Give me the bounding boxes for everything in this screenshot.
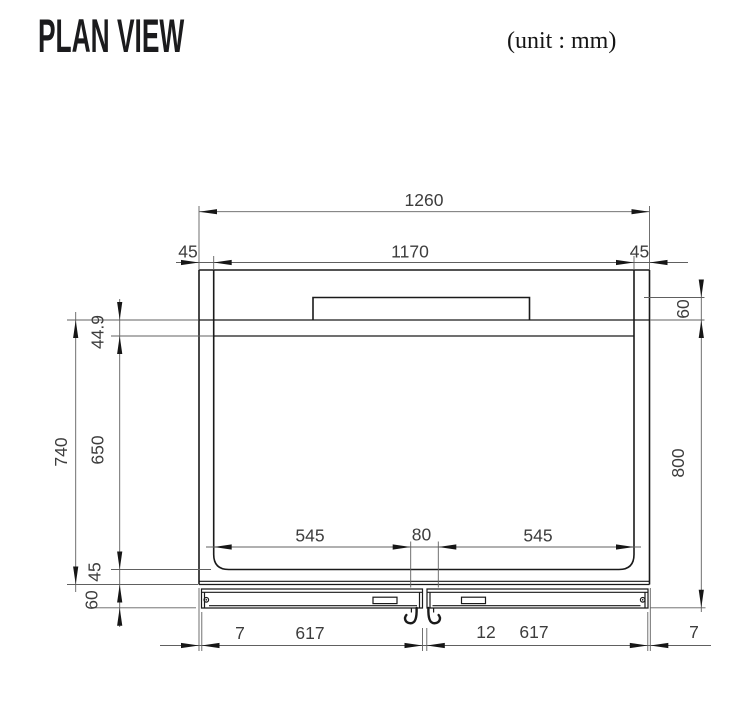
dim-edge-left: 7 bbox=[235, 623, 245, 643]
arrowhead bbox=[630, 643, 648, 648]
arrowhead bbox=[199, 209, 217, 214]
dim-panel-right: 617 bbox=[519, 622, 548, 642]
arrowhead bbox=[214, 260, 232, 265]
arrowhead bbox=[181, 643, 199, 648]
arrowhead bbox=[427, 643, 445, 648]
dim-opening-width: 1170 bbox=[391, 242, 429, 262]
plan-view-drawing: 1260 1170 45 45 60 800 740 44.9 650 45 6… bbox=[0, 0, 751, 718]
arrowhead bbox=[117, 302, 122, 320]
dim-top-inset: 44.9 bbox=[88, 315, 108, 349]
dim-overall-width: 1260 bbox=[405, 190, 444, 210]
drawing-sheet: PLAN VIEW (unit : mm) bbox=[0, 0, 751, 718]
arrowhead bbox=[699, 320, 704, 338]
dim-depth-left: 740 bbox=[51, 437, 71, 466]
arrowhead bbox=[438, 544, 456, 549]
dim-step-height-right: 60 bbox=[673, 299, 693, 319]
arrowhead bbox=[117, 585, 122, 603]
arrowhead bbox=[405, 643, 423, 648]
dim-margin-right: 45 bbox=[630, 242, 649, 262]
arrowhead bbox=[73, 320, 78, 338]
arrowhead bbox=[202, 643, 220, 648]
arrowhead bbox=[699, 590, 704, 608]
dim-span-right: 545 bbox=[523, 526, 552, 546]
dimension-labels-group: 1260 1170 45 45 60 800 740 44.9 650 45 6… bbox=[51, 190, 699, 643]
arrowhead bbox=[650, 643, 668, 648]
screw-left-center bbox=[206, 599, 208, 601]
dim-edge-right: 7 bbox=[689, 622, 699, 642]
dim-overall-depth-right: 800 bbox=[668, 448, 688, 477]
dim-panel-left: 617 bbox=[295, 623, 324, 643]
arrowheads-group bbox=[73, 209, 704, 648]
handle-right bbox=[462, 597, 486, 603]
arrowhead bbox=[214, 544, 232, 549]
dim-front-height: 60 bbox=[82, 590, 102, 610]
arrowhead bbox=[393, 544, 411, 549]
dim-span-left: 545 bbox=[295, 526, 324, 546]
arrowhead bbox=[650, 260, 668, 265]
dim-margin-left: 45 bbox=[178, 242, 197, 262]
arrowhead bbox=[699, 280, 704, 298]
arrowhead bbox=[117, 336, 122, 354]
screw-right-center bbox=[642, 599, 644, 601]
outline-group bbox=[199, 270, 650, 623]
dim-panel-gap: 12 bbox=[476, 622, 495, 642]
arrowhead bbox=[117, 552, 122, 570]
arrowhead bbox=[616, 544, 634, 549]
dim-center-gap: 80 bbox=[412, 525, 432, 545]
dim-bottom-inset: 45 bbox=[85, 562, 105, 581]
arrowhead bbox=[632, 209, 650, 214]
vent-bump bbox=[313, 298, 530, 321]
arrowhead bbox=[73, 567, 78, 585]
arrowhead bbox=[117, 608, 122, 626]
dim-opening-depth: 650 bbox=[88, 435, 108, 464]
handle-left bbox=[373, 597, 397, 603]
